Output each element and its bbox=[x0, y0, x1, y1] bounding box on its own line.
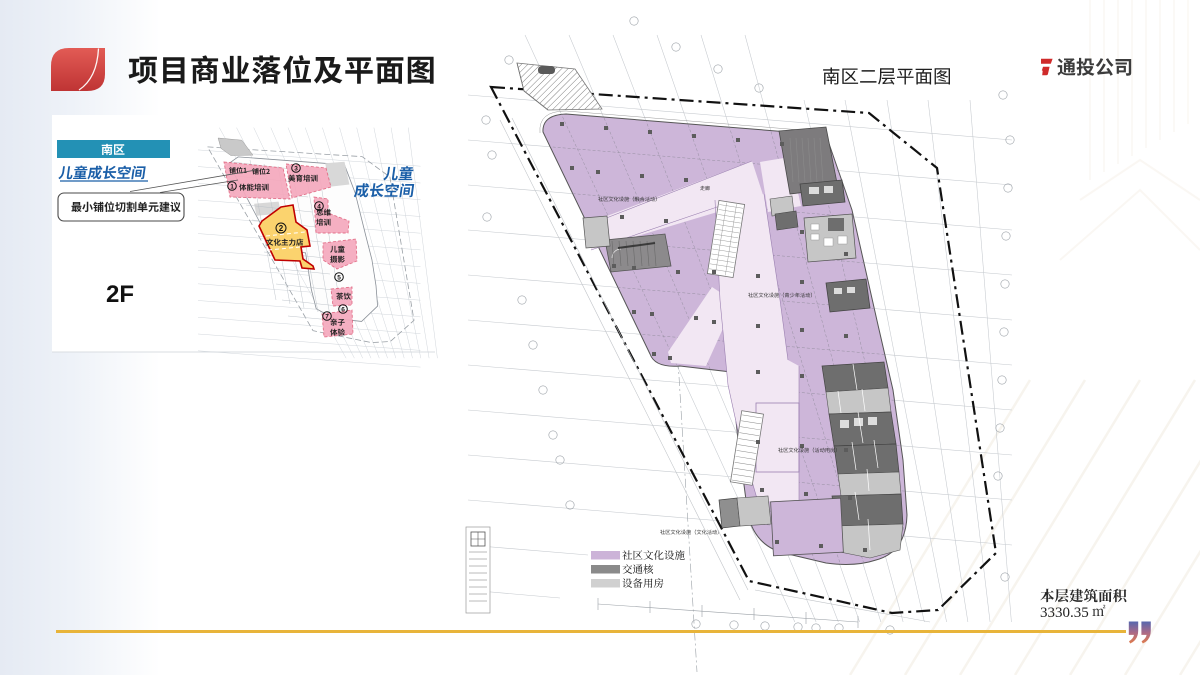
svg-text:5: 5 bbox=[337, 274, 341, 281]
svg-text:3: 3 bbox=[294, 165, 298, 172]
svg-text:2: 2 bbox=[279, 224, 284, 233]
svg-text:3330.35: 3330.35 bbox=[1040, 605, 1089, 621]
svg-text:2F: 2F bbox=[106, 281, 134, 308]
svg-text:1: 1 bbox=[230, 183, 234, 190]
svg-text:6: 6 bbox=[341, 306, 345, 313]
svg-text:7: 7 bbox=[325, 313, 329, 320]
